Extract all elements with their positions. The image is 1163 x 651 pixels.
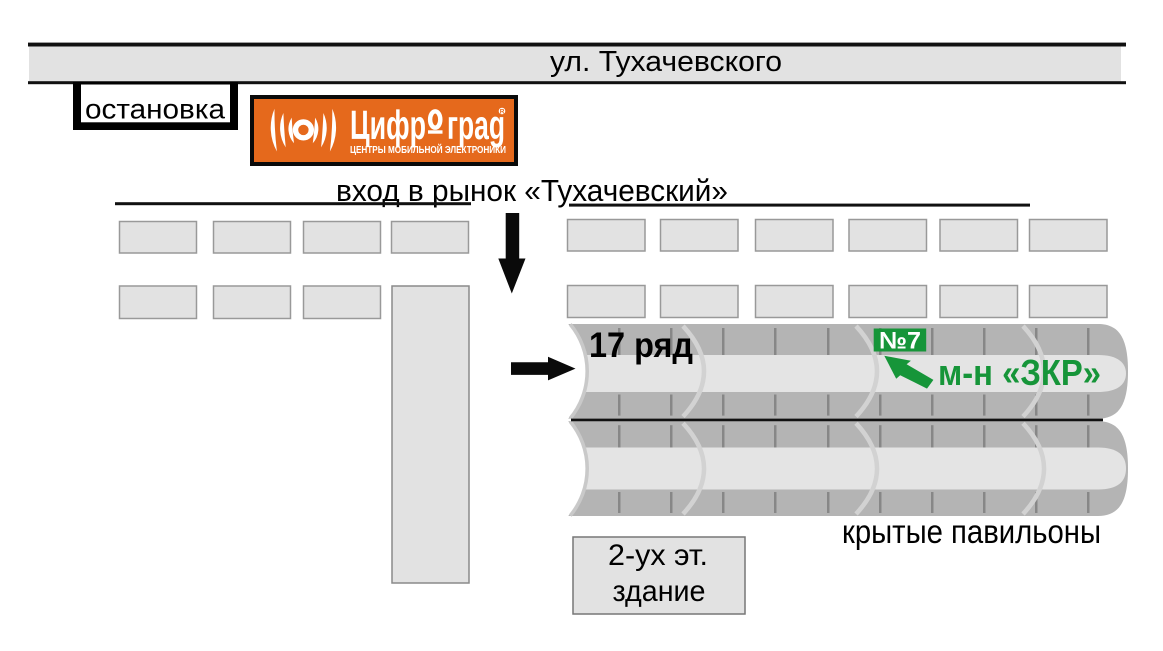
svg-text:остановка: остановка — [85, 93, 225, 124]
svg-text:граg: граg — [447, 102, 505, 148]
svg-text:здание: здание — [613, 575, 706, 608]
svg-text:№7: №7 — [879, 328, 921, 355]
svg-text:R: R — [500, 108, 505, 115]
svg-text:м-н «ЗКР»: м-н «ЗКР» — [938, 352, 1101, 393]
svg-text:2-ух эт.: 2-ух эт. — [608, 539, 708, 572]
svg-text:Цифр: Цифр — [350, 102, 426, 148]
svg-text:крытые павильоны: крытые павильоны — [842, 513, 1101, 550]
svg-text:ул. Тухачевского: ул. Тухачевского — [550, 46, 782, 78]
svg-text:17 ряд: 17 ряд — [589, 326, 693, 365]
svg-text:ЦЕНТРЫ МОБИЛЬНОЙ ЭЛЕКТРОНИКИ: ЦЕНТРЫ МОБИЛЬНОЙ ЭЛЕКТРОНИКИ — [350, 143, 506, 156]
